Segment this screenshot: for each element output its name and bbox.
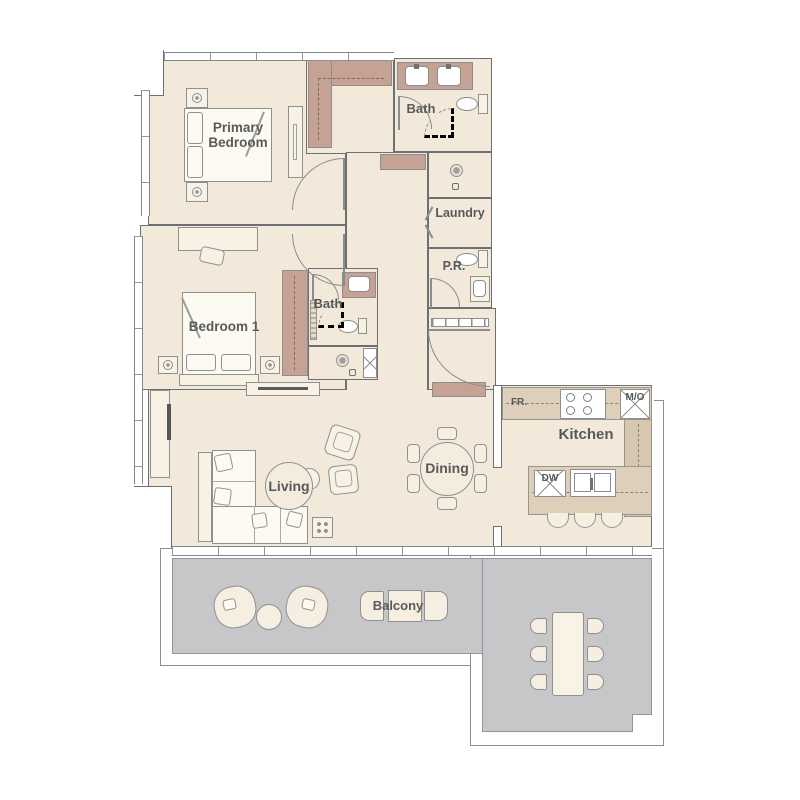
label-balcony: Balcony	[366, 599, 430, 614]
burner-icon	[583, 406, 592, 415]
plant-icon	[265, 360, 275, 370]
plant-icon	[192, 187, 202, 197]
washbasin-icon	[405, 66, 429, 86]
toilet-bowl-icon	[456, 97, 478, 111]
sofa-cushion-line	[280, 506, 281, 544]
label-fridge: FR.	[502, 397, 536, 408]
balcony-dining-chair	[530, 674, 547, 690]
burner-icon	[566, 393, 575, 402]
lounge-cushion	[301, 598, 316, 611]
tv-icon	[167, 404, 171, 440]
entry-threshold	[431, 318, 489, 327]
label-bath-2: Bath	[306, 297, 350, 312]
plant-icon	[192, 93, 202, 103]
sofa-console	[198, 452, 212, 542]
plant-icon	[163, 360, 173, 370]
pillow	[213, 487, 232, 506]
bedroom1-closet-rail	[294, 276, 295, 370]
tv-icon	[258, 387, 308, 390]
tap-icon	[446, 64, 451, 69]
burner-icon	[566, 406, 575, 415]
shower-fixture-icon	[349, 369, 356, 376]
balcony-side-table	[256, 604, 282, 630]
wall-stub-kitchen-bottom	[493, 526, 502, 548]
label-laundry: Laundry	[428, 206, 492, 220]
walkin-closet-rail-v	[318, 78, 319, 140]
label-bedroom-1: Bedroom 1	[180, 319, 268, 334]
balcony-dining-chair	[587, 646, 604, 662]
toilet-tank	[478, 250, 488, 268]
balcony-dining-chair	[587, 618, 604, 634]
wall-stub-kitchen-top	[493, 385, 502, 468]
bedroom1-closet	[282, 270, 308, 376]
washbasin-icon	[473, 280, 486, 297]
pillow	[187, 146, 203, 178]
shower-drain-icon	[336, 354, 349, 367]
exterior-strip-right	[654, 400, 664, 550]
window-south-living	[172, 546, 652, 556]
pillow	[221, 354, 251, 371]
washbasin-icon	[437, 66, 461, 86]
label-kitchen: Kitchen	[546, 427, 626, 444]
label-microwave-oven: M/O	[616, 392, 654, 403]
balcony-dining-chair	[530, 618, 547, 634]
balcony-dining-table	[552, 612, 584, 696]
balcony-dining-chair	[587, 674, 604, 690]
label-dishwasher: DW	[532, 473, 568, 484]
pillow	[251, 512, 268, 529]
dining-chair	[437, 427, 457, 440]
dining-chair	[474, 474, 487, 493]
corridor-coat-closet	[380, 154, 426, 170]
linen-shelf	[363, 348, 377, 378]
sink-basin	[574, 473, 591, 492]
label-powder-room: P.R.	[432, 259, 476, 273]
armchair-seat-line	[334, 469, 353, 488]
label-living: Living	[264, 479, 314, 495]
walkin-closet-rail-h	[318, 78, 384, 79]
balcony-notch	[632, 714, 652, 732]
sofa-cushion-line	[212, 481, 256, 482]
shower-drain-icon	[450, 164, 463, 177]
toilet-tank	[478, 94, 488, 114]
faucet-icon	[590, 478, 593, 490]
label-primary-bedroom: Primary Bedroom	[192, 120, 284, 150]
shower-fixture-icon	[452, 183, 459, 190]
toilet-tank	[358, 318, 367, 334]
sink-basin	[594, 473, 611, 492]
label-bath-main: Bath	[398, 102, 444, 117]
dining-chair	[437, 497, 457, 510]
window-west-primary	[141, 90, 150, 216]
desk	[178, 227, 258, 251]
floor-plan: Primary Bedroom Bath Laundry P.R. Bedroo…	[0, 0, 800, 800]
label-dining: Dining	[417, 461, 477, 477]
window-west-bedroom1	[134, 236, 143, 484]
mirror-glass	[293, 124, 297, 160]
washbasin-icon	[348, 276, 370, 292]
tap-icon	[414, 64, 419, 69]
walkin-closet-shelf-left	[308, 60, 332, 148]
balcony-dining-chair	[530, 646, 547, 662]
burner-icon	[583, 393, 592, 402]
side-table-plant	[312, 517, 333, 538]
dining-chair	[407, 474, 420, 493]
pillow	[186, 354, 216, 371]
pillow	[213, 452, 233, 472]
